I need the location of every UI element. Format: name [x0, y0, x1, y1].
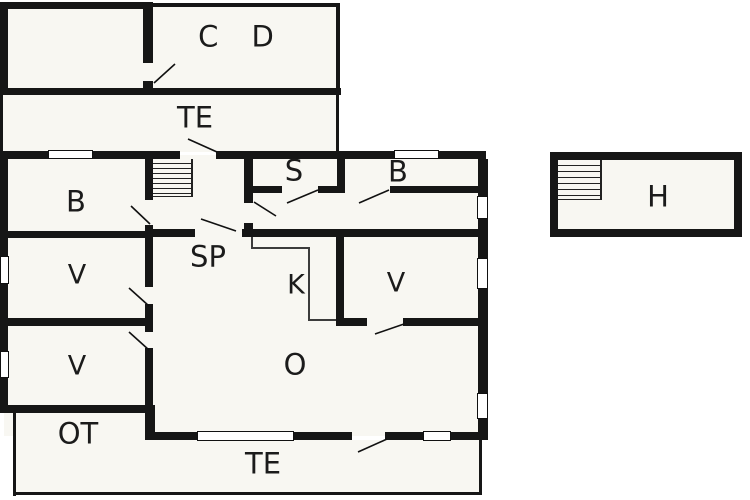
door-swing-line: [129, 332, 149, 350]
door-swing-line: [359, 190, 389, 203]
room-label-s: S: [285, 157, 303, 186]
room-label-te-upper: TE: [177, 104, 213, 133]
room-label-b-right: B: [388, 158, 408, 187]
room-label-h: H: [647, 183, 669, 212]
room-label-v-upper: V: [68, 262, 86, 289]
door-swing-line: [375, 324, 404, 334]
room-label-ot: OT: [58, 420, 99, 449]
door-swing-line: [201, 219, 236, 231]
door-swing-line: [129, 288, 149, 306]
room-label-k: K: [287, 272, 305, 299]
room-label-te-lower: TE: [245, 450, 281, 479]
door-swing-line: [254, 202, 276, 216]
door-swing-layer: [0, 0, 750, 500]
room-label-v-right: V: [387, 270, 405, 297]
room-label-v-lower: V: [68, 353, 86, 380]
door-swing-line: [358, 439, 387, 452]
room-label-o: O: [284, 351, 307, 380]
door-swing-line: [154, 64, 175, 83]
floor-plan: C D TE B S B SP K V V V O OT TE H: [0, 0, 750, 500]
room-label-sp: SP: [190, 243, 226, 272]
room-label-cd: C D: [198, 23, 274, 52]
door-swing-line: [188, 139, 217, 152]
door-swing-line: [131, 206, 150, 224]
room-label-b-left: B: [66, 188, 86, 217]
door-swing-line: [287, 190, 318, 203]
